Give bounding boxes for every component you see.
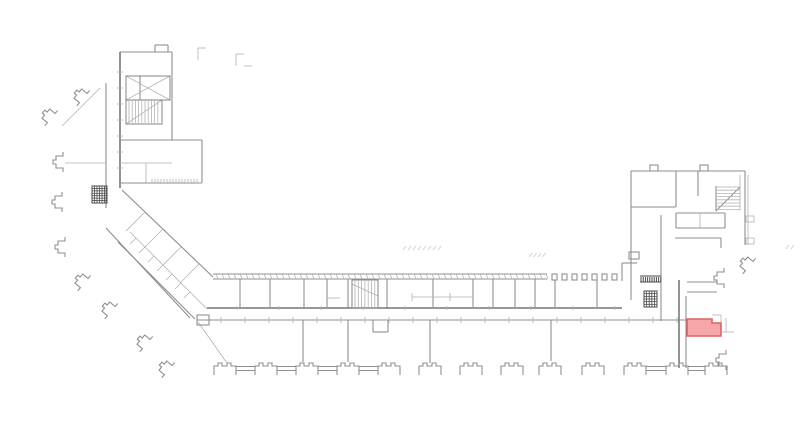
floorplan-viewport bbox=[0, 0, 800, 428]
walls-layer bbox=[62, 45, 748, 368]
hatch-layer bbox=[117, 72, 794, 323]
highlighted-room[interactable] bbox=[687, 319, 721, 336]
pillars-layer bbox=[214, 363, 727, 375]
rooms-layer bbox=[126, 76, 754, 325]
floor-plan bbox=[0, 0, 800, 428]
door-symbols-layer bbox=[37, 84, 756, 378]
